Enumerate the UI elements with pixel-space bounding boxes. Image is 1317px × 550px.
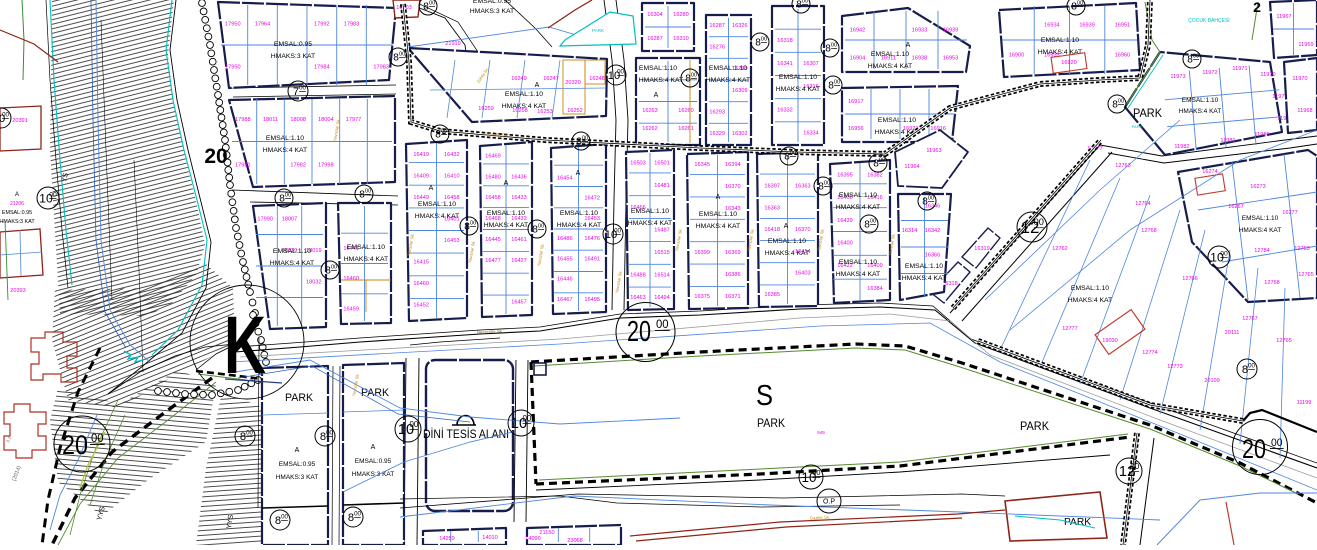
svg-text:PARK: PARK <box>592 28 604 33</box>
svg-text:16436: 16436 <box>511 174 527 180</box>
svg-text:16341: 16341 <box>777 61 793 67</box>
svg-text:16302: 16302 <box>732 131 748 137</box>
svg-text:16939: 16939 <box>1079 23 1095 29</box>
svg-text:PARK: PARK <box>1133 106 1162 120</box>
svg-text:00: 00 <box>522 414 531 423</box>
svg-text:2: 2 <box>1253 0 1261 15</box>
svg-text:16920: 16920 <box>1061 60 1077 66</box>
svg-text:11199: 11199 <box>1297 400 1312 406</box>
svg-text:16253: 16253 <box>537 109 553 115</box>
svg-text:16472: 16472 <box>584 196 600 202</box>
svg-text:11980: 11980 <box>1254 132 1269 138</box>
svg-text:HMAKS:4 KAT: HMAKS:4 KAT <box>557 222 601 229</box>
svg-text:16382: 16382 <box>867 173 883 179</box>
svg-text:12773: 12773 <box>1167 364 1183 370</box>
svg-text:11981: 11981 <box>1220 138 1235 144</box>
svg-text:16452: 16452 <box>413 302 429 308</box>
svg-text:16480: 16480 <box>485 174 501 180</box>
svg-text:00: 00 <box>354 511 361 518</box>
svg-text:EMSAL:0.95: EMSAL:0.95 <box>279 461 316 468</box>
svg-text:Neyzenler Sk.: Neyzenler Sk. <box>477 329 503 335</box>
svg-text:00: 00 <box>326 430 333 437</box>
svg-text:16384: 16384 <box>867 286 883 292</box>
svg-text:12765: 12765 <box>1298 272 1314 278</box>
svg-text:HMAKS:3 KAT: HMAKS:3 KAT <box>470 8 514 15</box>
svg-text:16329: 16329 <box>709 131 725 137</box>
svg-text:16458: 16458 <box>444 195 460 201</box>
svg-text:00: 00 <box>1193 54 1199 60</box>
svg-text:17984: 17984 <box>314 65 330 71</box>
svg-text:16514: 16514 <box>654 273 670 279</box>
svg-text:HMAKS:4 KAT: HMAKS:4 KAT <box>706 77 750 84</box>
svg-text:16385: 16385 <box>764 292 780 298</box>
svg-text:16458: 16458 <box>485 195 501 201</box>
svg-text:HMAKS:4 KAT: HMAKS:4 KAT <box>639 77 683 84</box>
svg-text:HMAKS:4 KAT: HMAKS:4 KAT <box>765 250 809 257</box>
svg-text:EMSAL:1.10: EMSAL:1.10 <box>871 51 909 58</box>
svg-text:00: 00 <box>399 52 405 58</box>
svg-text:A: A <box>371 444 376 451</box>
svg-text:11971: 11971 <box>1232 66 1247 72</box>
svg-text:12762: 12762 <box>1052 246 1068 252</box>
svg-text:16318: 16318 <box>777 38 793 44</box>
svg-text:A: A <box>295 447 300 454</box>
svg-text:16262: 16262 <box>642 126 658 132</box>
svg-text:16395: 16395 <box>837 173 853 179</box>
svg-text:16386: 16386 <box>725 272 741 278</box>
svg-text:17950: 17950 <box>225 65 241 71</box>
svg-text:A: A <box>429 185 434 192</box>
svg-text:16261: 16261 <box>678 126 694 132</box>
svg-text:00: 00 <box>2 112 9 119</box>
svg-text:00: 00 <box>331 265 337 271</box>
svg-text:00: 00 <box>617 69 624 76</box>
svg-text:20393: 20393 <box>10 288 26 294</box>
svg-text:16370: 16370 <box>725 184 741 190</box>
svg-text:00: 00 <box>1271 437 1283 449</box>
svg-text:EMSAL:0.95: EMSAL:0.95 <box>473 0 511 5</box>
svg-text:16439: 16439 <box>837 218 853 224</box>
svg-text:EMSAL:1.10: EMSAL:1.10 <box>779 74 817 81</box>
svg-text:16454: 16454 <box>557 175 573 181</box>
svg-text:16258: 16258 <box>512 108 528 114</box>
svg-text:EMSAL:1.10: EMSAL:1.10 <box>1041 37 1079 44</box>
svg-text:A: A <box>504 180 509 187</box>
svg-text:00: 00 <box>1034 217 1044 227</box>
svg-text:11970: 11970 <box>1292 76 1307 82</box>
svg-text:00: 00 <box>1130 462 1139 471</box>
svg-text:16501: 16501 <box>654 160 670 166</box>
svg-text:17990: 17990 <box>257 216 273 222</box>
svg-text:16446: 16446 <box>557 277 573 283</box>
svg-text:A: A <box>784 223 789 230</box>
svg-text:00: 00 <box>870 219 876 225</box>
svg-text:16252: 16252 <box>567 108 583 114</box>
svg-text:HMAKS:4 KAT: HMAKS:4 KAT <box>836 204 880 211</box>
svg-text:12768: 12768 <box>1141 228 1157 234</box>
svg-text:16259: 16259 <box>478 106 494 112</box>
svg-text:00: 00 <box>285 193 291 199</box>
svg-text:HMAKS:4 KAT: HMAKS:4 KAT <box>628 220 672 227</box>
svg-text:16469: 16469 <box>485 154 501 160</box>
svg-text:HMAKS:4 KAT: HMAKS:4 KAT <box>696 223 740 230</box>
svg-text:00: 00 <box>441 129 447 135</box>
svg-text:16938: 16938 <box>912 55 928 61</box>
svg-text:16345: 16345 <box>694 162 710 168</box>
svg-text:17983: 17983 <box>373 65 389 71</box>
svg-text:16494: 16494 <box>654 295 670 301</box>
svg-text:18008: 18008 <box>290 117 306 123</box>
svg-text:00: 00 <box>614 228 621 235</box>
svg-text:16503: 16503 <box>630 160 646 166</box>
svg-text:17964: 17964 <box>255 22 271 28</box>
svg-text:HMAKS:3 KAT: HMAKS:3 KAT <box>276 474 319 481</box>
svg-text:16904: 16904 <box>850 55 866 61</box>
svg-text:16276: 16276 <box>709 45 725 51</box>
svg-text:949: 949 <box>817 430 825 435</box>
svg-text:16461: 16461 <box>511 237 527 243</box>
svg-text:A: A <box>15 192 19 198</box>
svg-text:A: A <box>654 92 659 99</box>
svg-text:16371: 16371 <box>725 294 741 300</box>
svg-text:11968: 11968 <box>1297 108 1312 114</box>
svg-text:HMAKS:4 KAT: HMAKS:4 KAT <box>868 63 912 70</box>
svg-text:17988: 17988 <box>235 117 251 123</box>
svg-text:EMSAL:1.10: EMSAL:1.10 <box>699 211 737 218</box>
svg-text:11973: 11973 <box>1170 74 1185 80</box>
svg-text:00: 00 <box>470 221 476 227</box>
svg-text:11972: 11972 <box>1202 70 1217 76</box>
svg-text:16515: 16515 <box>654 250 670 256</box>
svg-text:20111: 20111 <box>1225 330 1240 336</box>
svg-text:HMAKS:4 KAT: HMAKS:4 KAT <box>836 271 880 278</box>
svg-text:16307: 16307 <box>803 61 819 67</box>
svg-text:16363: 16363 <box>795 184 811 190</box>
svg-text:00: 00 <box>790 151 796 157</box>
svg-text:17982: 17982 <box>290 163 306 169</box>
svg-text:16314: 16314 <box>902 228 918 234</box>
svg-text:EMSAL:0.95: EMSAL:0.95 <box>355 458 392 465</box>
svg-text:00: 00 <box>1118 99 1124 105</box>
svg-text:11970: 11970 <box>1260 72 1275 78</box>
svg-text:16460: 16460 <box>413 281 429 287</box>
svg-text:ÇOCUK BAHÇESİ: ÇOCUK BAHÇESİ <box>1188 17 1229 24</box>
svg-text:HMAKS:4 KAT: HMAKS:4 KAT <box>270 260 314 267</box>
svg-text:HMAKS:4 KAT: HMAKS:4 KAT <box>776 86 820 93</box>
svg-text:EMSAL:1.10: EMSAL:1.10 <box>266 135 304 142</box>
svg-text:EMSAL:1.10: EMSAL:1.10 <box>1242 215 1279 222</box>
svg-text:12767: 12767 <box>1242 316 1258 322</box>
svg-text:12784: 12784 <box>1254 248 1270 254</box>
svg-text:00: 00 <box>49 191 57 198</box>
svg-text:16326: 16326 <box>732 23 748 29</box>
svg-text:16247: 16247 <box>543 76 559 82</box>
svg-text:00: 00 <box>281 514 288 521</box>
svg-text:16956: 16956 <box>848 126 864 132</box>
svg-text:00: 00 <box>834 80 840 86</box>
svg-text:00: 00 <box>879 158 885 164</box>
svg-text:16951: 16951 <box>1115 23 1131 29</box>
svg-text:16399: 16399 <box>694 250 710 256</box>
svg-text:00: 00 <box>691 73 697 79</box>
svg-text:EMSAL:1.10: EMSAL:1.10 <box>1071 285 1109 292</box>
svg-text:A: A <box>576 170 581 177</box>
svg-text:16459: 16459 <box>343 306 359 312</box>
svg-text:00: 00 <box>582 136 588 142</box>
svg-text:21206: 21206 <box>10 201 24 207</box>
svg-text:00: 00 <box>802 0 808 5</box>
svg-text:EMSAL:1.10: EMSAL:1.10 <box>560 210 598 217</box>
svg-text:16293: 16293 <box>709 110 725 116</box>
svg-text:00: 00 <box>91 431 104 445</box>
svg-text:17983: 17983 <box>344 22 360 28</box>
svg-text:17992: 17992 <box>314 22 330 28</box>
svg-text:EMSAL:1.10: EMSAL:1.10 <box>839 192 877 199</box>
svg-text:S: S <box>756 380 773 412</box>
svg-text:00: 00 <box>928 196 934 202</box>
svg-text:16287: 16287 <box>709 23 725 29</box>
svg-text:00: 00 <box>761 37 767 43</box>
svg-text:EMSAL:1.10: EMSAL:1.10 <box>768 238 806 245</box>
svg-text:20: 20 <box>204 145 227 168</box>
svg-text:16432: 16432 <box>444 152 460 158</box>
svg-text:16274: 16274 <box>1202 169 1218 175</box>
svg-text:16263: 16263 <box>642 108 658 114</box>
svg-text:EMSAL:0.95: EMSAL:0.95 <box>274 41 312 48</box>
svg-text:11964: 11964 <box>904 164 919 170</box>
svg-text:20: 20 <box>1242 434 1266 464</box>
svg-text:HMAKS:4 KAT: HMAKS:4 KAT <box>263 147 307 154</box>
svg-text:20109: 20109 <box>1204 378 1220 384</box>
svg-text:16488: 16488 <box>630 273 646 279</box>
svg-text:16342: 16342 <box>925 228 941 234</box>
svg-text:00: 00 <box>1220 250 1228 257</box>
svg-text:16934: 16934 <box>1044 23 1060 29</box>
svg-text:16277: 16277 <box>1282 210 1298 216</box>
svg-text:23068: 23068 <box>567 538 583 544</box>
svg-text:16460: 16460 <box>343 276 359 282</box>
svg-text:DİNİ TESİS ALANI: DİNİ TESİS ALANI <box>423 428 509 441</box>
svg-text:18032: 18032 <box>306 279 322 285</box>
svg-text:PARK: PARK <box>1020 421 1049 433</box>
svg-text:16332: 16332 <box>777 107 793 113</box>
svg-text:16304: 16304 <box>647 12 663 18</box>
svg-text:16445: 16445 <box>485 237 501 243</box>
svg-text:00: 00 <box>538 224 544 230</box>
svg-text:16280: 16280 <box>673 12 689 18</box>
svg-text:12764: 12764 <box>1135 201 1151 207</box>
svg-text:EMSAL:1.10: EMSAL:1.10 <box>1182 97 1219 104</box>
svg-text:16310: 16310 <box>673 36 689 42</box>
svg-text:00: 00 <box>246 430 253 437</box>
svg-text:11969: 11969 <box>1298 42 1313 48</box>
svg-text:A: A <box>535 82 540 89</box>
svg-text:EMSAL:0.95: EMSAL:0.95 <box>2 210 32 216</box>
svg-text:HMAKS:4 KAT: HMAKS:4 KAT <box>1179 108 1222 115</box>
svg-text:16495: 16495 <box>584 297 600 303</box>
svg-text:16334: 16334 <box>803 131 819 137</box>
svg-text:17977: 17977 <box>346 117 362 123</box>
svg-text:16491: 16491 <box>584 256 600 262</box>
svg-text:11982: 11982 <box>1174 144 1189 150</box>
svg-text:16953: 16953 <box>943 55 959 61</box>
svg-text:16933: 16933 <box>912 27 928 33</box>
svg-text:16942: 16942 <box>850 27 866 33</box>
svg-text:PARK: PARK <box>757 418 785 430</box>
svg-text:00: 00 <box>299 85 306 92</box>
svg-text:16248: 16248 <box>589 76 605 82</box>
svg-text:16476: 16476 <box>584 236 600 242</box>
svg-text:20: 20 <box>627 316 651 348</box>
svg-text:PARK: PARK <box>361 387 390 399</box>
svg-text:12765: 12765 <box>1276 338 1292 344</box>
svg-text:00: 00 <box>409 420 418 429</box>
svg-text:16397: 16397 <box>764 184 780 190</box>
svg-text:00: 00 <box>656 317 669 331</box>
svg-text:16455: 16455 <box>557 256 573 262</box>
svg-text:HMAKS:4 KAT: HMAKS:4 KAT <box>484 222 528 229</box>
svg-text:HMAKS:4 KAT: HMAKS:4 KAT <box>1239 227 1282 234</box>
svg-text:16960: 16960 <box>1115 53 1131 59</box>
svg-text:20320: 20320 <box>565 80 581 86</box>
svg-text:00: 00 <box>365 189 371 195</box>
svg-text:16487: 16487 <box>654 228 670 234</box>
svg-text:17950: 17950 <box>225 22 241 28</box>
svg-text:16433: 16433 <box>511 195 527 201</box>
svg-text:16366: 16366 <box>925 253 941 259</box>
svg-text:00: 00 <box>812 468 820 477</box>
svg-text:O.P: O.P <box>823 499 835 506</box>
svg-text:21150: 21150 <box>539 530 554 536</box>
svg-text:EMSAL:1.10: EMSAL:1.10 <box>639 65 677 72</box>
svg-text:EMSAL:1.10: EMSAL:1.10 <box>418 201 456 208</box>
svg-text:16410: 16410 <box>444 173 460 179</box>
svg-text:14090: 14090 <box>525 536 541 542</box>
svg-text:16260: 16260 <box>678 108 694 114</box>
svg-text:00: 00 <box>1077 1 1083 7</box>
svg-text:16418: 16418 <box>764 227 780 233</box>
svg-text:12766: 12766 <box>1182 276 1198 282</box>
svg-text:16486: 16486 <box>557 236 573 242</box>
svg-text:00: 00 <box>1248 363 1255 370</box>
svg-text:12763: 12763 <box>1115 163 1131 169</box>
svg-text:00: 00 <box>429 1 435 7</box>
svg-text:K: K <box>224 300 266 391</box>
svg-text:16409: 16409 <box>413 173 429 179</box>
svg-text:11963: 11963 <box>926 148 941 154</box>
svg-text:16363: 16363 <box>764 205 780 211</box>
svg-text:16370: 16370 <box>795 227 811 233</box>
svg-text:16900: 16900 <box>1009 53 1025 59</box>
svg-text:16319: 16319 <box>974 246 990 252</box>
svg-text:16273: 16273 <box>1250 184 1266 190</box>
svg-text:A: A <box>906 42 911 49</box>
svg-text:16287: 16287 <box>647 36 663 42</box>
svg-text:16457: 16457 <box>511 300 527 306</box>
svg-text:EMSAL:1.10: EMSAL:1.10 <box>709 65 747 72</box>
svg-text:12763: 12763 <box>1294 246 1310 252</box>
svg-text:A: A <box>716 194 721 201</box>
svg-text:16369: 16369 <box>725 250 741 256</box>
svg-text:12774: 12774 <box>1142 350 1158 356</box>
svg-text:PARK: PARK <box>285 392 314 404</box>
svg-text:19030: 19030 <box>1102 338 1118 344</box>
svg-text:EMSAL:1.10: EMSAL:1.10 <box>878 117 916 124</box>
svg-text:16477: 16477 <box>485 258 501 264</box>
svg-text:16400: 16400 <box>837 241 853 247</box>
svg-text:EMSAL:1.10: EMSAL:1.10 <box>505 91 543 98</box>
svg-text:EMSAL:1.10: EMSAL:1.10 <box>839 259 877 266</box>
svg-text:16375: 16375 <box>694 294 710 300</box>
svg-text:16463: 16463 <box>630 295 646 301</box>
svg-text:HMAKS:4 KAT: HMAKS:4 KAT <box>415 213 459 220</box>
svg-text:EMSAL:1.10: EMSAL:1.10 <box>347 244 385 251</box>
svg-text:16419: 16419 <box>413 152 429 158</box>
svg-text:16917: 16917 <box>848 99 864 105</box>
svg-text:21919: 21919 <box>445 41 461 47</box>
svg-text:16427: 16427 <box>511 258 527 264</box>
svg-text:11967: 11967 <box>1276 14 1291 20</box>
svg-text:16309: 16309 <box>732 88 748 94</box>
svg-text:16249: 16249 <box>511 76 527 82</box>
svg-text:HMAKS:4 KAT: HMAKS:4 KAT <box>1038 49 1082 56</box>
svg-text:PARK: PARK <box>1132 124 1143 129</box>
svg-text:HMAKS:3 KAT: HMAKS:3 KAT <box>271 53 315 60</box>
svg-text:14259: 14259 <box>439 536 455 542</box>
svg-text:HMAKS:4 KAT: HMAKS:4 KAT <box>1068 297 1112 304</box>
svg-text:16453: 16453 <box>444 238 460 244</box>
svg-text:HMAKS:4 KAT: HMAKS:4 KAT <box>902 275 946 282</box>
svg-text:16394: 16394 <box>725 162 741 168</box>
svg-text:EMSAL:1.10: EMSAL:1.10 <box>631 208 669 215</box>
svg-text:EMSAL:1.10: EMSAL:1.10 <box>273 248 311 255</box>
svg-text:16403: 16403 <box>795 271 811 277</box>
svg-text:18004: 18004 <box>318 117 334 123</box>
svg-text:EMSAL:1.10: EMSAL:1.10 <box>487 210 525 217</box>
svg-text:16467: 16467 <box>557 297 573 303</box>
svg-text:20: 20 <box>62 430 88 460</box>
svg-text:18011: 18011 <box>263 117 278 123</box>
svg-text:00: 00 <box>824 181 830 187</box>
svg-text:17981: 17981 <box>235 163 251 169</box>
svg-text:16449: 16449 <box>413 195 429 201</box>
svg-text:EMSAL:1.10: EMSAL:1.10 <box>905 263 943 270</box>
svg-text:16939: 16939 <box>943 27 959 33</box>
svg-text:16267: 16267 <box>1228 204 1244 210</box>
svg-text:12768: 12768 <box>1264 280 1280 286</box>
svg-text:Gaziler Sk.: Gaziler Sk. <box>810 514 831 520</box>
svg-text:00: 00 <box>831 43 837 49</box>
svg-text:HMAKS:4 KAT: HMAKS:4 KAT <box>344 256 388 263</box>
svg-text:18007: 18007 <box>282 216 298 222</box>
svg-text:16415: 16415 <box>413 259 429 265</box>
svg-text:14010: 14010 <box>482 535 498 541</box>
svg-text:20391: 20391 <box>12 118 28 124</box>
svg-text:16481: 16481 <box>654 183 670 189</box>
svg-text:12777: 12777 <box>1062 326 1078 332</box>
svg-text:17998: 17998 <box>318 163 334 169</box>
